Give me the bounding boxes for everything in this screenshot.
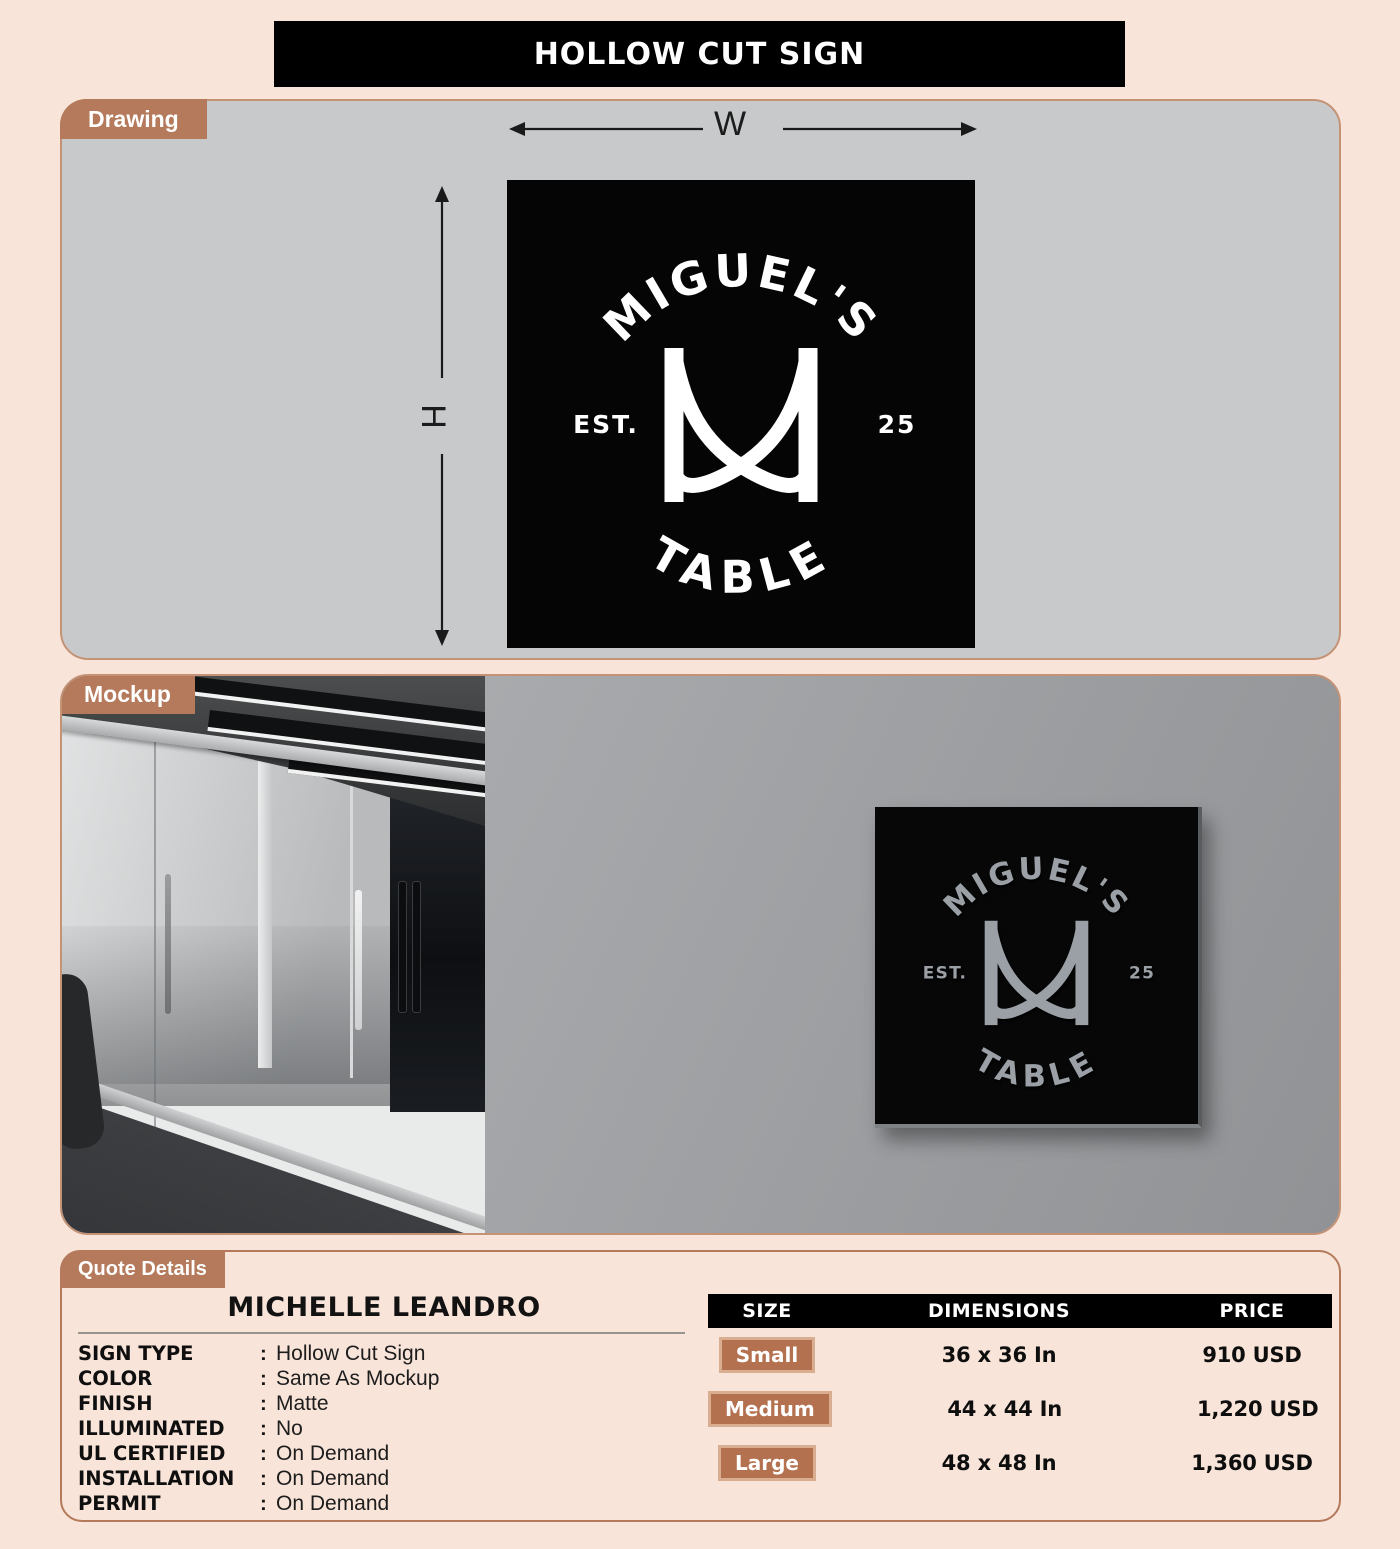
size-badge-medium: Medium [708,1391,832,1427]
spec-label: PERMIT [78,1491,260,1516]
door-handle [165,874,171,1014]
price-header: PRICE [1172,1300,1332,1322]
spec-separator: : [260,1491,276,1516]
spec-separator: : [260,1466,276,1491]
price-value: 910 USD [1172,1343,1332,1367]
spec-value: No [276,1416,303,1441]
door-handle [355,890,362,1030]
drawing-panel: Drawing W H [60,99,1341,660]
quote-details-panel: Quote Details MICHELLE LEANDRO SIGN TYPE… [60,1250,1341,1522]
miguels-table-logo [507,180,975,648]
spec-label: ILLUMINATED [78,1416,260,1441]
price-value: 1,220 USD [1178,1397,1338,1421]
spec-value: Hollow Cut Sign [276,1341,425,1366]
divider [78,1332,685,1334]
dimensions-value: 48 x 48 In [826,1451,1172,1475]
glass-edge [350,738,353,1078]
pricing-row-small: Small 36 x 36 In 910 USD [708,1328,1332,1382]
spec-label: UL CERTIFIED [78,1441,260,1466]
page-title-bar: HOLLOW CUT SIGN [274,21,1125,87]
spec-row: COLOR : Same As Mockup [78,1366,690,1391]
dimensions-value: 36 x 36 In [826,1343,1172,1367]
dimensions-value: 44 x 44 In [832,1397,1178,1421]
spec-separator: : [260,1391,276,1416]
spec-list: SIGN TYPE : Hollow Cut Sign COLOR : Same… [78,1341,690,1516]
size-badge-large: Large [718,1445,816,1481]
spec-value: Matte [276,1391,329,1416]
spec-row: UL CERTIFIED : On Demand [78,1441,690,1466]
mockup-tab-label: Mockup [84,681,171,708]
spec-label: SIGN TYPE [78,1341,260,1366]
door-handle [398,881,407,1013]
office-photo [62,676,485,1235]
glass-reflection [62,926,394,1106]
drawing-tab: Drawing [60,99,207,139]
sign-drawing [507,180,975,648]
price-value: 1,360 USD [1172,1451,1332,1475]
pricing-row-large: Large 48 x 48 In 1,360 USD [708,1436,1332,1490]
miguels-table-logo-engraved [875,807,1198,1124]
spec-separator: : [260,1441,276,1466]
customer-name: MICHELLE LEANDRO [78,1292,690,1323]
spec-label: INSTALLATION [78,1466,260,1491]
door-handle [412,881,421,1013]
quote-details-tab-label: Quote Details [78,1258,207,1281]
mockup-panel: Mockup [60,674,1341,1235]
pricing-table-header: SIZE DIMENSIONS PRICE [708,1294,1332,1328]
spec-row: ILLUMINATED : No [78,1416,690,1441]
spec-separator: : [260,1366,276,1391]
spec-value: On Demand [276,1491,389,1516]
size-header: SIZE [708,1300,826,1322]
spec-separator: : [260,1341,276,1366]
spec-row: PERMIT : On Demand [78,1491,690,1516]
spec-label: FINISH [78,1391,260,1416]
quote-details-tab: Quote Details [60,1250,225,1288]
width-dimension-label: W [714,105,746,144]
page-title: HOLLOW CUT SIGN [534,37,866,72]
size-badge-small: Small [719,1337,815,1373]
pricing-row-medium: Medium 44 x 44 In 1,220 USD [708,1382,1332,1436]
quote-specs: MICHELLE LEANDRO SIGN TYPE : Hollow Cut … [78,1292,690,1516]
height-dimension-label: H [413,404,452,429]
dimensions-header: DIMENSIONS [826,1300,1172,1322]
sign-mockup [875,807,1202,1128]
spec-label: COLOR [78,1366,260,1391]
spec-separator: : [260,1416,276,1441]
spec-value: On Demand [276,1466,389,1491]
spec-value: On Demand [276,1441,389,1466]
pricing-table: SIZE DIMENSIONS PRICE Small 36 x 36 In 9… [708,1294,1332,1490]
mockup-tab: Mockup [60,674,195,714]
glass-edge [154,734,156,1134]
spec-row: SIGN TYPE : Hollow Cut Sign [78,1341,690,1366]
spec-row: INSTALLATION : On Demand [78,1466,690,1491]
spec-row: FINISH : Matte [78,1391,690,1416]
spec-value: Same As Mockup [276,1366,439,1391]
door-frame-post [258,728,272,1068]
drawing-tab-label: Drawing [88,106,179,133]
